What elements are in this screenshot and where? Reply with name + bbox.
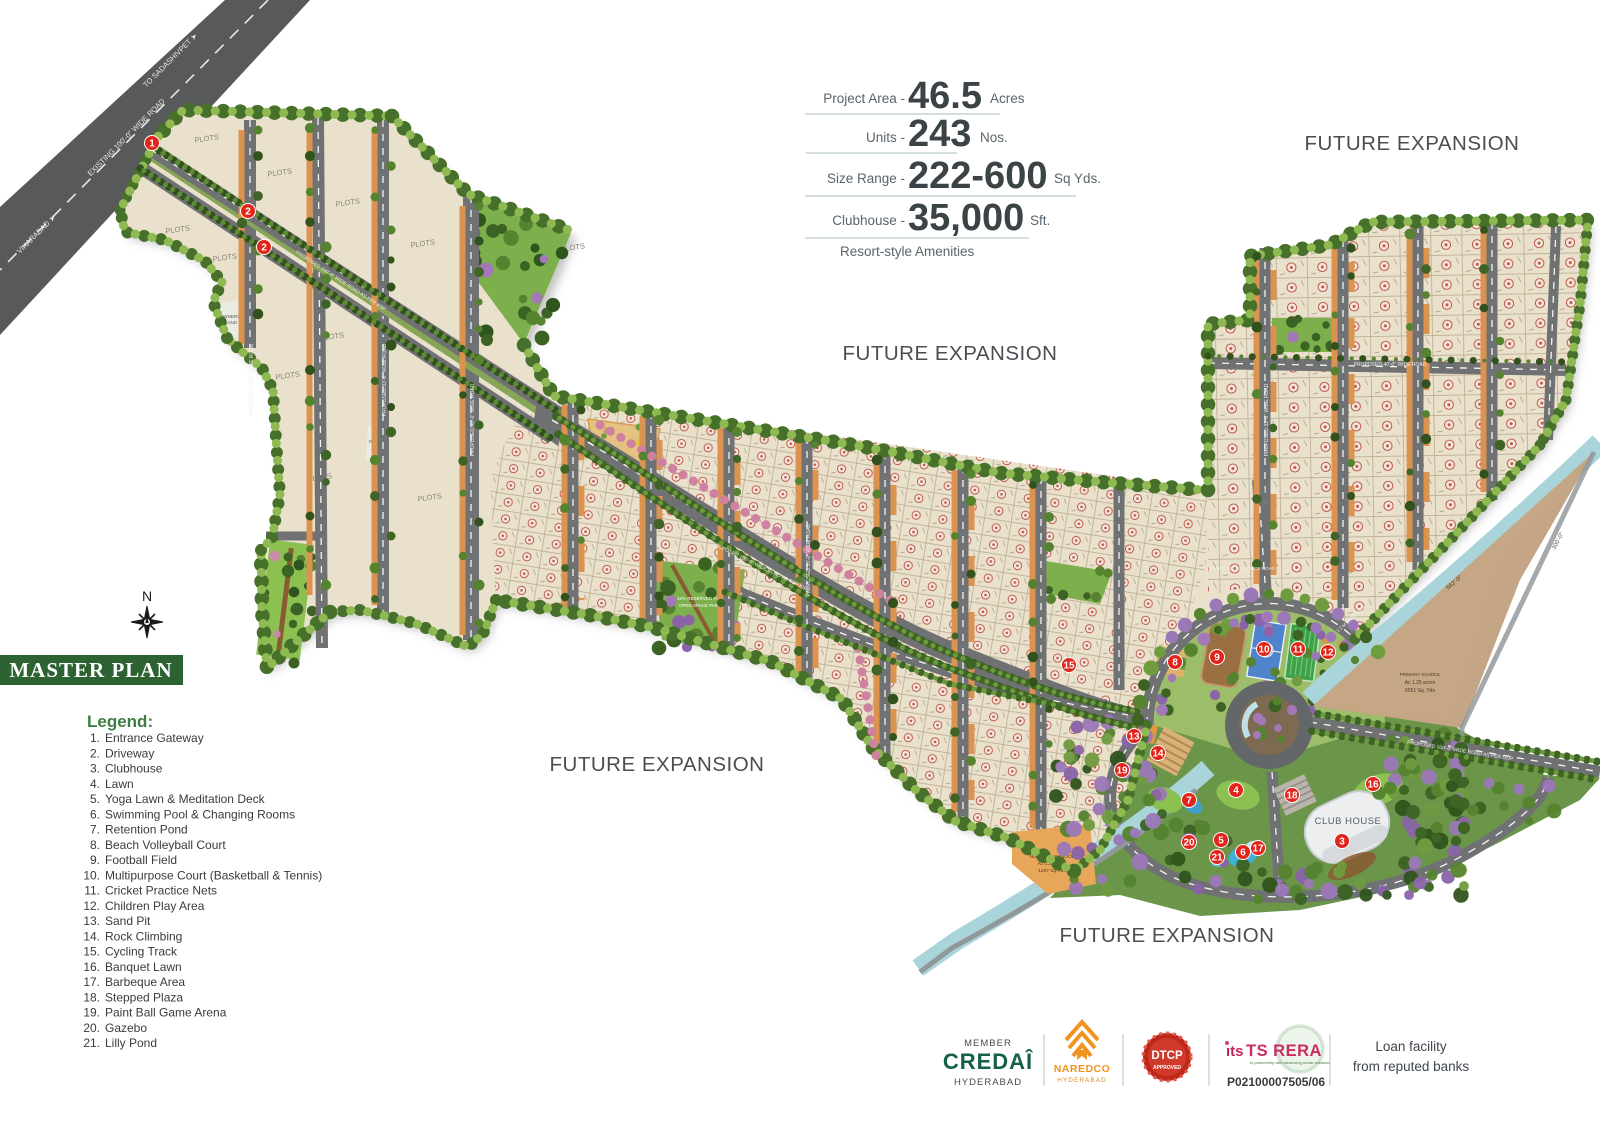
svg-text:Sft.: Sft. xyxy=(1030,213,1050,228)
svg-text:1: 1 xyxy=(149,138,155,149)
svg-text:6051 Sq. Yds: 6051 Sq. Yds xyxy=(1405,688,1435,694)
svg-text:PROPOSED 33'-0" WIDE ROAD: PROPOSED 33'-0" WIDE ROAD xyxy=(249,343,255,416)
svg-text:FUTURE EXPANSION: FUTURE EXPANSION xyxy=(1060,924,1275,947)
svg-text:Multipurpose Court (Basketball: Multipurpose Court (Basketball & Tennis) xyxy=(105,868,322,882)
svg-text:2: 2 xyxy=(245,206,251,217)
svg-text:Driveway: Driveway xyxy=(105,746,154,760)
svg-text:17: 17 xyxy=(1252,843,1264,854)
svg-text:Rock Climbing: Rock Climbing xyxy=(105,929,182,943)
svg-text:Retention Pond: Retention Pond xyxy=(105,823,188,837)
svg-text:243: 243 xyxy=(908,113,971,155)
svg-text:Legend:: Legend: xyxy=(87,712,153,731)
svg-text:NAREDCO: NAREDCO xyxy=(1054,1063,1111,1075)
svg-text:12: 12 xyxy=(1322,647,1334,658)
svg-text:HYDERABAD: HYDERABAD xyxy=(1057,1077,1106,1084)
svg-text:FUTURE EXPANSION: FUTURE EXPANSION xyxy=(550,753,765,776)
svg-text:Children Play Area: Children Play Area xyxy=(105,899,205,913)
svg-text:12.: 12. xyxy=(83,899,100,913)
svg-text:N: N xyxy=(142,588,152,604)
svg-text:6.: 6. xyxy=(90,807,100,821)
svg-text:2.: 2. xyxy=(90,746,100,760)
svg-text:222-600: 222-600 xyxy=(908,155,1047,197)
svg-text:4.: 4. xyxy=(90,777,100,791)
svg-text:Banquet Lawn: Banquet Lawn xyxy=(105,960,182,974)
svg-text:46.5: 46.5 xyxy=(908,75,982,117)
svg-text:Loan facility: Loan facility xyxy=(1375,1039,1447,1054)
svg-text:Lilly Pond: Lilly Pond xyxy=(105,1036,157,1050)
svg-text:11.: 11. xyxy=(84,884,100,898)
svg-text:7.: 7. xyxy=(90,823,100,837)
svg-text:1.: 1. xyxy=(90,731,100,745)
svg-text:18: 18 xyxy=(1286,790,1298,801)
svg-text:15.: 15. xyxy=(83,945,100,959)
svg-text:LAND: LAND xyxy=(225,320,238,325)
svg-text:17.: 17. xyxy=(83,975,100,989)
svg-text:6: 6 xyxy=(1240,847,1246,858)
svg-text:Sq Yds.: Sq Yds. xyxy=(1054,171,1101,186)
svg-text:Nos.: Nos. xyxy=(980,130,1008,145)
svg-text:Football Field: Football Field xyxy=(105,853,177,867)
svg-text:20.: 20. xyxy=(83,1021,100,1035)
svg-text:18.: 18. xyxy=(83,990,100,1004)
svg-text:MEMBER: MEMBER xyxy=(964,1038,1012,1049)
svg-text:7: 7 xyxy=(1186,795,1192,806)
svg-text:from reputed banks: from reputed banks xyxy=(1353,1059,1470,1074)
svg-text:14: 14 xyxy=(1152,748,1164,759)
svg-text:Beach Volleyball Court: Beach Volleyball Court xyxy=(105,838,226,852)
svg-text:5: 5 xyxy=(1218,835,1224,846)
svg-text:19: 19 xyxy=(1116,765,1128,776)
svg-text:Gazebo: Gazebo xyxy=(105,1021,147,1035)
svg-text:20: 20 xyxy=(1183,837,1195,848)
svg-text:Stepped Plaza: Stepped Plaza xyxy=(105,990,183,1004)
svg-text:10.: 10. xyxy=(83,868,100,882)
svg-text:16.: 16. xyxy=(83,960,100,974)
svg-text:Barbeque Area: Barbeque Area xyxy=(105,975,185,989)
svg-text:APPROVED: APPROVED xyxy=(1153,1065,1181,1071)
svg-text:3: 3 xyxy=(1339,836,1345,847)
svg-text:8.: 8. xyxy=(90,838,100,852)
svg-text:Yoga Lawn & Meditation Deck: Yoga Lawn & Meditation Deck xyxy=(105,792,266,806)
svg-text:Entrance Gateway: Entrance Gateway xyxy=(105,731,204,745)
svg-text:4: 4 xyxy=(1233,785,1239,796)
svg-text:Acres: Acres xyxy=(990,91,1025,106)
svg-text:HYDERABAD: HYDERABAD xyxy=(954,1077,1022,1088)
svg-text:In partnership with advancing: In partnership with advancing urban solu… xyxy=(1250,1060,1330,1065)
svg-text:Cricket Practice Nets: Cricket Practice Nets xyxy=(105,884,217,898)
svg-text:10% RESERVED FOR: 10% RESERVED FOR xyxy=(677,596,723,601)
svg-text:21.: 21. xyxy=(83,1036,100,1050)
svg-text:3.: 3. xyxy=(90,762,100,776)
svg-text:FUTURE EXPANSION: FUTURE EXPANSION xyxy=(843,342,1058,365)
svg-text:15: 15 xyxy=(1063,660,1075,671)
svg-text:11: 11 xyxy=(1293,644,1304,655)
svg-text:19.: 19. xyxy=(83,1006,100,1020)
svg-text:13.: 13. xyxy=(83,914,100,928)
svg-text:9: 9 xyxy=(1214,652,1220,663)
svg-text:Cycling Track: Cycling Track xyxy=(105,945,178,959)
svg-text:Sand Pit: Sand Pit xyxy=(105,914,151,928)
svg-text:Swimming Pool & Changing Rooms: Swimming Pool & Changing Rooms xyxy=(105,807,295,821)
svg-text:PRIMARY SCHOOL: PRIMARY SCHOOL xyxy=(1400,672,1441,677)
svg-text:5.: 5. xyxy=(90,792,100,806)
svg-text:CLUB HOUSE: CLUB HOUSE xyxy=(1315,816,1382,827)
svg-text:14.: 14. xyxy=(83,929,100,943)
svg-text:Clubhouse: Clubhouse xyxy=(105,762,163,776)
svg-text:Lawn: Lawn xyxy=(105,777,134,791)
svg-text:PROPOSED 40'-0" WIDE ROAD: PROPOSED 40'-0" WIDE ROAD xyxy=(1209,566,1275,571)
svg-text:21: 21 xyxy=(1211,852,1223,863)
svg-text:PROPOSED 33'-0" WIDE ROAD: PROPOSED 33'-0" WIDE ROAD xyxy=(1264,383,1270,456)
svg-text:Paint Ball Game Arena: Paint Ball Game Arena xyxy=(105,1006,227,1020)
svg-text:Project Area -: Project Area - xyxy=(823,91,905,106)
svg-text:ıts: ıts xyxy=(1226,1043,1244,1060)
svg-text:P02100007505/06: P02100007505/06 xyxy=(1227,1075,1325,1089)
svg-text:TS RERA: TS RERA xyxy=(1246,1042,1322,1060)
svg-text:10: 10 xyxy=(1258,644,1270,655)
svg-text:PROPOSED 33'-0" WIDE ROAD: PROPOSED 33'-0" WIDE ROAD xyxy=(806,523,812,596)
svg-text:CREDAÎ: CREDAÎ xyxy=(943,1049,1033,1074)
svg-text:Resort-style Amenities: Resort-style Amenities xyxy=(840,244,975,259)
svg-text:Size Range -: Size Range - xyxy=(827,171,905,186)
svg-text:9.: 9. xyxy=(90,853,100,867)
svg-text:FUTURE EXPANSION: FUTURE EXPANSION xyxy=(1305,132,1520,155)
svg-text:8: 8 xyxy=(1172,657,1178,668)
svg-text:PROPOSED 33'-0" WIDE ROAD: PROPOSED 33'-0" WIDE ROAD xyxy=(382,343,388,416)
svg-text:DTCP: DTCP xyxy=(1151,1050,1183,1062)
svg-text:2: 2 xyxy=(261,242,267,253)
svg-text:PROPOSED 40'-0" WIDE ROAD: PROPOSED 40'-0" WIDE ROAD xyxy=(470,383,476,456)
svg-text:Ac 1.25 acres: Ac 1.25 acres xyxy=(1405,680,1436,686)
svg-text:13: 13 xyxy=(1128,731,1140,742)
svg-text:PROPOSED 40'-0" WIDE ROAD: PROPOSED 40'-0" WIDE ROAD xyxy=(1354,362,1427,368)
svg-text:16: 16 xyxy=(1367,779,1379,790)
svg-text:OPEN SPACE PARK: OPEN SPACE PARK xyxy=(679,603,721,608)
svg-text:Clubhouse -: Clubhouse - xyxy=(832,213,905,228)
svg-text:Units -: Units - xyxy=(866,130,905,145)
svg-text:35,000: 35,000 xyxy=(908,197,1024,239)
svg-text:MASTER PLAN: MASTER PLAN xyxy=(9,658,172,682)
